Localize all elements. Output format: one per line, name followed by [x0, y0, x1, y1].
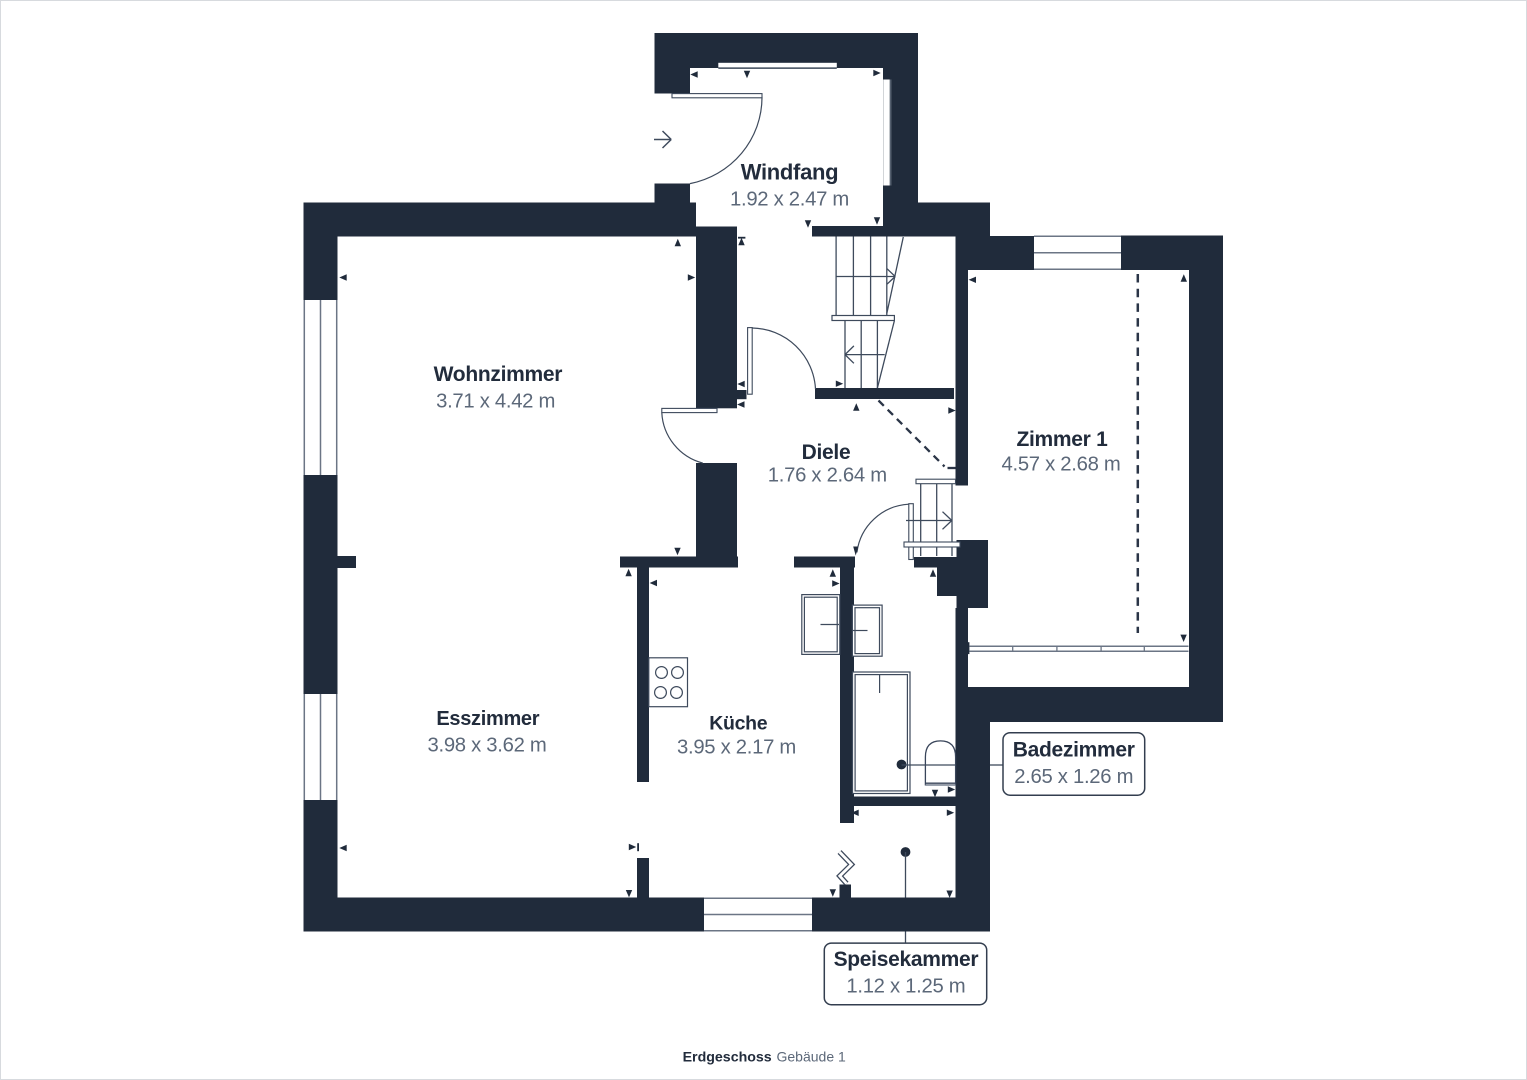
- svg-text:4.57 x 2.68 m: 4.57 x 2.68 m: [1002, 454, 1121, 476]
- svg-text:1.76 x 2.64 m: 1.76 x 2.64 m: [768, 465, 887, 487]
- svg-text:Badezimmer: Badezimmer: [1013, 738, 1135, 761]
- svg-text:Diele: Diele: [802, 441, 851, 464]
- svg-text:Erdgeschoss: Erdgeschoss: [683, 1049, 772, 1065]
- svg-text:3.71 x 4.42 m: 3.71 x 4.42 m: [436, 391, 555, 413]
- svg-text:Gebäude 1: Gebäude 1: [777, 1048, 846, 1064]
- svg-text:1.12 x 1.25 m: 1.12 x 1.25 m: [846, 975, 965, 997]
- svg-text:3.95 x 2.17 m: 3.95 x 2.17 m: [677, 737, 796, 759]
- svg-text:Esszimmer: Esszimmer: [436, 708, 539, 730]
- svg-text:2.65 x 1.26 m: 2.65 x 1.26 m: [1014, 766, 1133, 788]
- svg-text:1.92 x 2.47 m: 1.92 x 2.47 m: [730, 189, 849, 211]
- svg-text:Zimmer 1: Zimmer 1: [1017, 428, 1109, 451]
- svg-text:Speisekammer: Speisekammer: [834, 948, 979, 971]
- svg-text:3.98 x 3.62 m: 3.98 x 3.62 m: [428, 735, 547, 757]
- svg-text:Windfang: Windfang: [741, 160, 839, 185]
- svg-text:Wohnzimmer: Wohnzimmer: [434, 363, 563, 386]
- svg-text:Küche: Küche: [709, 713, 768, 735]
